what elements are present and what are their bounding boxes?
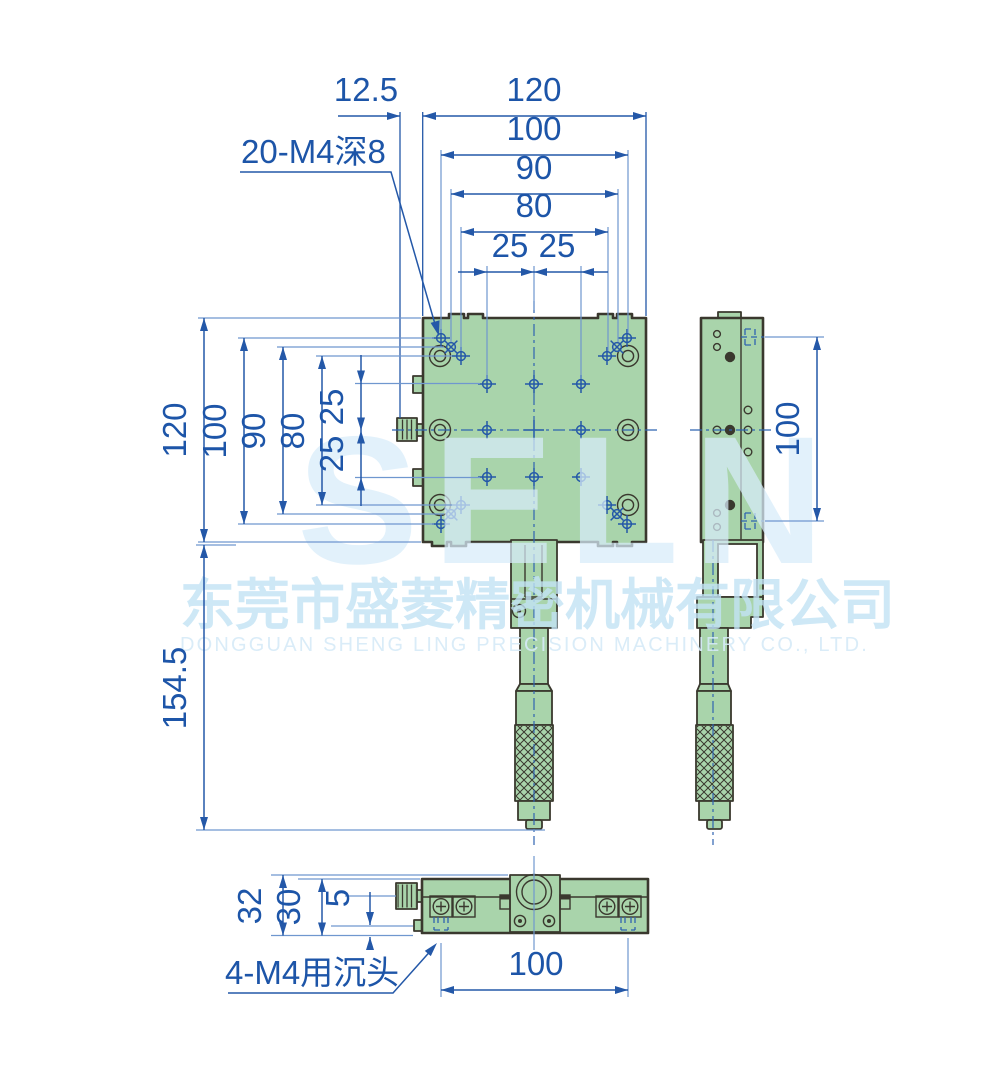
micrometer-side: [696, 628, 733, 829]
watermark-company-en: DONGGUAN SHENG LING PRECISION MACHINERY …: [180, 634, 869, 656]
technical-drawing-page: SELN 东莞市盛菱精密机械有限公司 DONGGUAN SHENG LING P…: [0, 0, 1001, 1089]
callout-bottom-holes: 4-M4用沉头: [225, 943, 437, 993]
dim-text-left-25b: 25: [313, 436, 350, 473]
dim-text-left-90: 90: [235, 413, 272, 450]
dim-text-left-100: 100: [196, 403, 233, 458]
dim-text-154-5: 154.5: [156, 647, 193, 730]
dim-text-25b: 25: [539, 227, 576, 264]
bottom-center-block: [510, 875, 560, 933]
dim-text-25a: 25: [492, 227, 529, 264]
callout-top-holes: 20-M4深8: [240, 133, 440, 336]
dim-text-32: 32: [231, 888, 268, 925]
dim-text-120: 120: [506, 71, 561, 108]
watermark-company-cn: 东莞市盛菱精密机械有限公司: [180, 574, 895, 636]
dim-text-80: 80: [516, 187, 553, 224]
callout-top-text: 20-M4深8: [241, 133, 386, 170]
dim-text-100: 100: [506, 110, 561, 147]
dim-text-30: 30: [270, 889, 307, 926]
watermark-logo: SELN: [297, 398, 838, 602]
dim-text-5: 5: [319, 889, 356, 907]
dim-text-90: 90: [516, 149, 553, 186]
dim-line-25-25: [458, 268, 608, 276]
dim-text-left-120: 120: [156, 402, 193, 457]
thimble-knurl-side: [696, 725, 733, 801]
stage-drawing: SELN 东莞市盛菱精密机械有限公司 DONGGUAN SHENG LING P…: [0, 0, 1001, 1089]
bottom-view: [396, 856, 648, 950]
callout-bottom-text: 4-M4用沉头: [225, 954, 399, 991]
dim-text-left-25a: 25: [313, 389, 350, 426]
dim-text-right-100: 100: [769, 401, 806, 456]
dim-text-left-80: 80: [274, 413, 311, 450]
bottom-knob: [396, 883, 417, 909]
dim-text-12-5: 12.5: [334, 71, 398, 108]
dim-text-bottom-100: 100: [508, 945, 563, 982]
